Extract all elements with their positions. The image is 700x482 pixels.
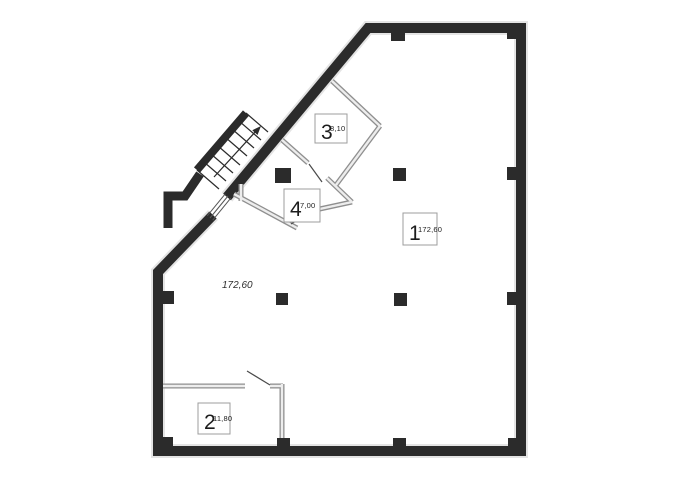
column-bottom-3 [393,438,406,448]
room-1-label: 1 172,60 [403,213,442,245]
notch-bottom-right [508,438,516,447]
column-grid-a2 [393,168,406,181]
room-3-label: 3 8,10 [315,114,347,144]
room-1-area: 172,60 [418,225,442,234]
room-4-label: 4 7,00 [284,189,320,222]
column-grid-a1 [275,168,291,183]
stair-outer-wall [197,113,246,170]
column-right-wall-2 [507,292,517,305]
hall-area-text: 172,60 [222,280,253,291]
column-bottom-1 [163,437,173,447]
column-bottom-2 [277,438,290,448]
entry-door [207,194,230,220]
column-right-wall-1 [507,167,517,180]
room-2-label: 2 11,80 [198,403,232,434]
room-2-door-leaf [247,371,270,385]
room-3-area: 8,10 [330,124,345,133]
notch-top-right [507,33,516,39]
floor-plan-page: 1 172,60 2 11,80 3 8,10 4 7,00 172,60 [0,0,700,482]
porch-jog-wall [168,174,200,228]
room-4-area: 7,00 [300,201,315,210]
column-grid-b1 [276,293,288,305]
room-2-area: 11,80 [213,414,232,423]
room-3-door-leaf [309,164,322,182]
column-grid-b2 [394,293,407,306]
column-left-wall [163,291,174,304]
floor-plan-svg: 1 172,60 2 11,80 3 8,10 4 7,00 172,60 [0,0,700,482]
column-top-wall [391,33,405,41]
